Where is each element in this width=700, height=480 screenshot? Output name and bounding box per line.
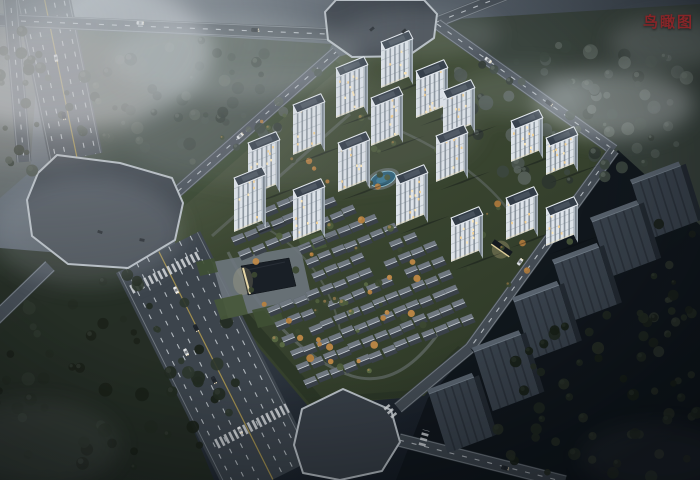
aerial-render — [0, 0, 700, 480]
aerial-render-page: 鸟瞰图 — [0, 0, 700, 480]
view-label: 鸟瞰图 — [643, 11, 694, 32]
vignette-overlay — [0, 0, 700, 480]
